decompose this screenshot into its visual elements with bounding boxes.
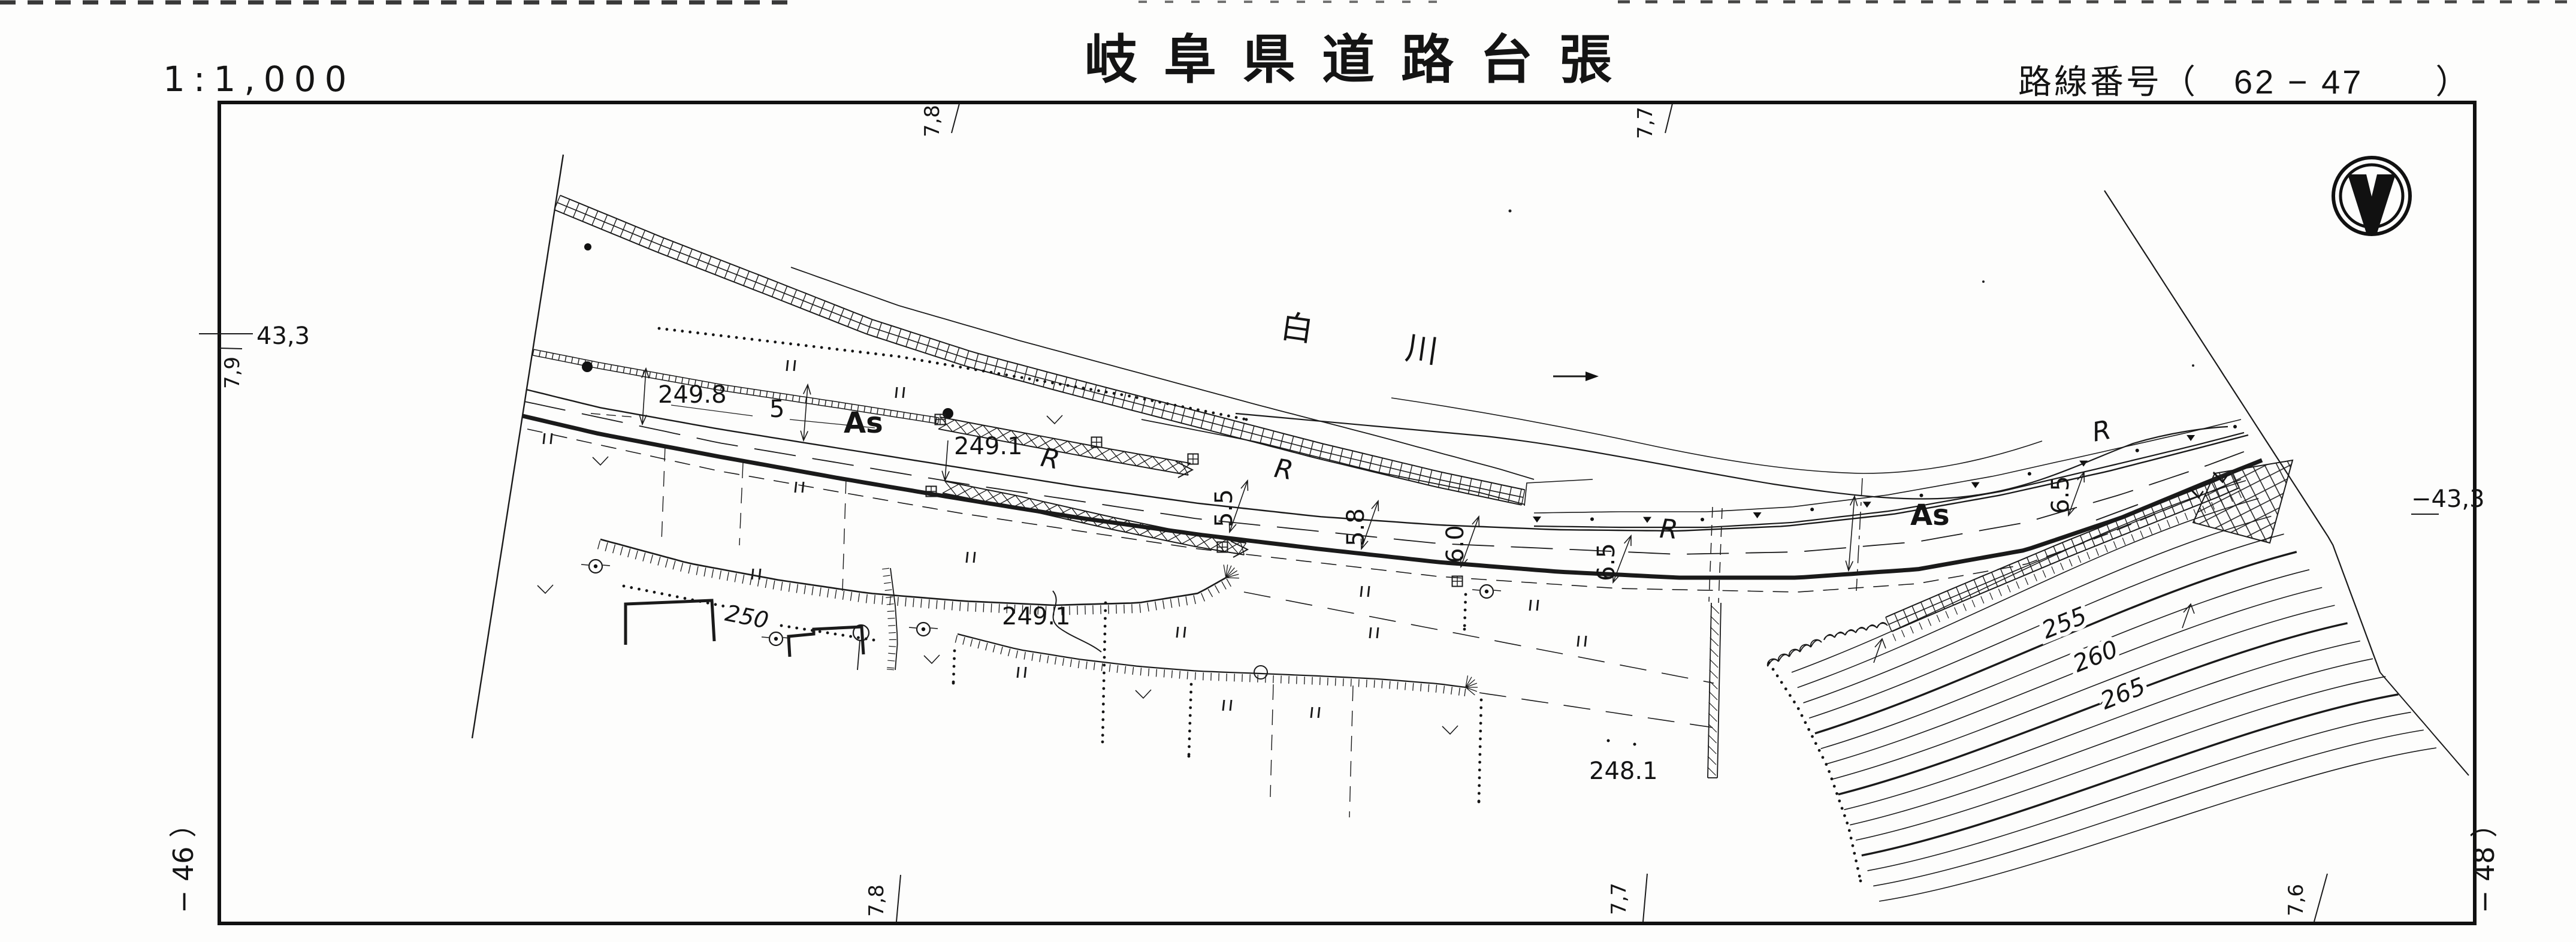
contour-label: 255: [2038, 602, 2091, 644]
left-elev-tick: 43,3: [256, 322, 310, 350]
scale-label: 1:1,000: [163, 59, 355, 99]
width-label: 5.5: [1210, 489, 1238, 527]
radius-label: R: [1038, 442, 1062, 476]
river-name-char: 川: [1403, 329, 1440, 371]
width-label: 5: [769, 395, 784, 423]
width-label: 5.8: [1342, 508, 1370, 547]
header: 1:1,000 岐阜県道路台張 路線番号（ 62 − 47 ）: [163, 30, 2471, 101]
radius-label: R: [1272, 453, 1295, 487]
top-station-tick: 7,7: [1633, 107, 1657, 139]
map-canvas: 1:1,000 岐阜県道路台張 路線番号（ 62 − 47 ） 249.85As…: [0, 0, 2576, 942]
left-station-tick: 7,9: [221, 357, 244, 389]
surface-label: As: [1910, 499, 1950, 532]
right-elev-tick: −43,3: [2411, 485, 2485, 513]
contour-label: 250: [723, 600, 771, 634]
north-arrow-icon: [2333, 158, 2410, 235]
bottom-station-tick: 7,7: [1607, 883, 1631, 915]
radius-label: R: [2089, 415, 2113, 448]
map-linework: [472, 155, 2469, 901]
road-register-sheet: 1:1,000 岐阜県道路台張 路線番号（ 62 − 47 ） 249.85As…: [0, 0, 2576, 942]
frame-tie-ticks: 43,37,9−43,37,87,77,87,77,6− 46 ）− 48 ）: [167, 104, 2500, 922]
width-label: 6.5: [2047, 476, 2074, 514]
surface-label: As: [844, 406, 883, 440]
river-name-char: 白: [1278, 307, 1315, 349]
bottom-station-tick: 7,6: [2284, 884, 2308, 916]
radius-label: R: [1659, 514, 1679, 545]
top-station-tick: 7,8: [920, 105, 944, 137]
contour-label: 260: [2069, 635, 2122, 678]
elevation-label: 248.1: [1589, 757, 1658, 785]
route-number-label: 路線番号（ 62 − 47 ）: [2018, 63, 2471, 101]
map-annotations: 249.85As249.1RRRRAs5.55.86.06.56.5249.12…: [658, 307, 2233, 785]
width-label: 6.5: [1593, 543, 1620, 581]
elevation-label: 249.1: [1002, 603, 1071, 630]
sheet-number-left: − 46 ）: [167, 810, 200, 913]
elevation-label: 249.1: [954, 433, 1023, 460]
elevation-label: 249.8: [658, 381, 727, 409]
sheet-number-right: − 48 ）: [2468, 810, 2500, 913]
page-title: 岐阜県道路台張: [1085, 30, 1638, 89]
width-label: 6.0: [1442, 525, 1469, 563]
bottom-station-tick: 7,8: [865, 884, 889, 917]
